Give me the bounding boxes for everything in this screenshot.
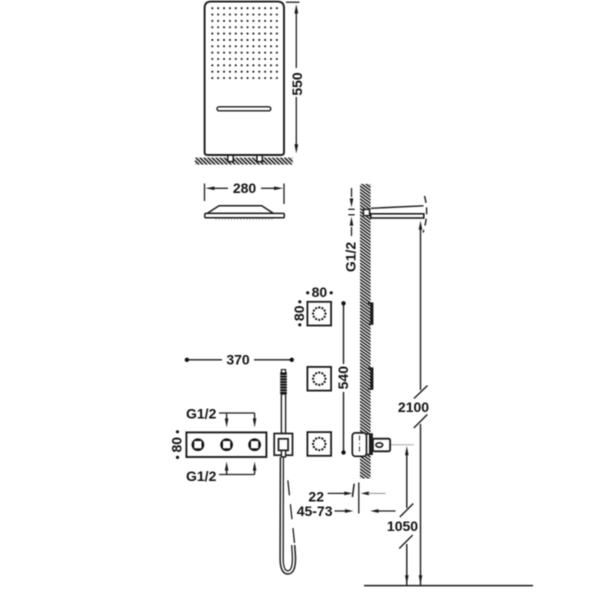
svg-text:550: 550 [289, 72, 305, 96]
svg-text:540: 540 [335, 366, 351, 390]
svg-text:G1/2: G1/2 [186, 468, 217, 484]
svg-text:80: 80 [291, 305, 307, 321]
svg-text:280: 280 [233, 180, 257, 196]
svg-text:G1/2: G1/2 [186, 406, 217, 422]
svg-text:80: 80 [312, 284, 328, 300]
svg-text:80: 80 [169, 437, 185, 453]
svg-text:G1/2: G1/2 [343, 242, 359, 273]
svg-text:2100: 2100 [398, 399, 429, 415]
svg-text:45-73: 45-73 [297, 503, 333, 519]
svg-text:1050: 1050 [387, 518, 418, 534]
svg-text:370: 370 [226, 351, 250, 367]
